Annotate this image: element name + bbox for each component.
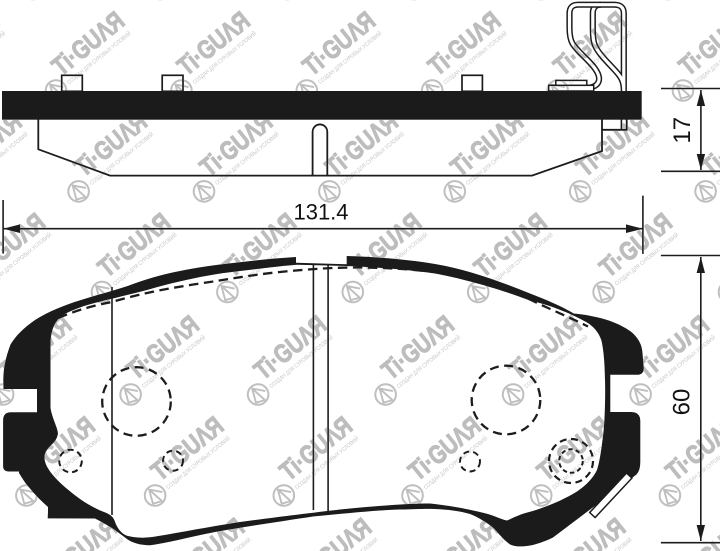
svg-text:17: 17 xyxy=(669,117,696,144)
svg-text:60: 60 xyxy=(669,389,696,416)
svg-text:131.4: 131.4 xyxy=(293,200,348,225)
